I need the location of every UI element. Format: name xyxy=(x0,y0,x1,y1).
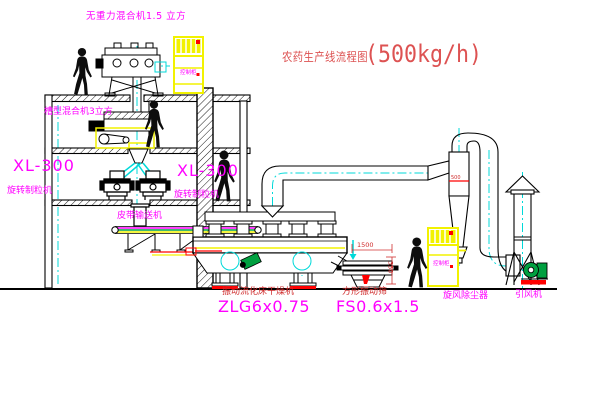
label-cyclone: 旋风除尘器 xyxy=(443,292,488,301)
label-sieve-name: 方形振动筛 xyxy=(342,288,387,297)
label-fan: 引风机 xyxy=(515,291,542,300)
label-sieve-model: FS0.6x1.5 xyxy=(336,299,420,315)
cabinet2-text: 控制柜 xyxy=(433,262,450,268)
induced-draft-fan xyxy=(521,263,548,285)
drawing-title: 农药生产线流程图 xyxy=(282,51,368,63)
label-granulator2-model: XL-300 xyxy=(177,163,239,179)
dimension-cyclone-mark: 500 xyxy=(451,176,461,181)
drawing-title-capacity: (500kg/h) xyxy=(365,42,482,66)
label-belt-conveyor: 皮带输送机 xyxy=(117,212,162,221)
label-granulator2-name: 旋转制粒机 xyxy=(174,191,219,200)
person-figure-roof xyxy=(73,48,92,95)
label-granulator1-name: 旋转制粒机 xyxy=(7,187,52,196)
cyclone-separator xyxy=(449,133,520,274)
label-dryer-name: 振动流化床干燥机 xyxy=(222,288,294,297)
label-dryer-model: ZLG6x0.75 xyxy=(218,299,310,315)
dimension-sieve-height: 350 xyxy=(387,261,394,273)
label-granulator1-model: XL-300 xyxy=(13,158,75,174)
trough-mixer-machine xyxy=(89,112,156,163)
cabinet1-text: 控制柜 xyxy=(180,71,197,77)
cad-drawing-canvas: 无重力混合机1.5 立方 槽型混合机3立方 XL-300 旋转制粒机 XL-30… xyxy=(0,0,600,403)
exhaust-duct xyxy=(262,161,449,217)
person-figure-ground xyxy=(407,237,427,287)
control-cabinet-2 xyxy=(428,228,458,286)
label-second-mixer: 槽型混合机3立方 xyxy=(44,108,113,117)
label-top-mixer: 无重力混合机1.5 立方 xyxy=(86,12,186,22)
control-cabinet-1 xyxy=(174,37,203,93)
dimension-sieve-length: 1500 xyxy=(357,242,374,249)
